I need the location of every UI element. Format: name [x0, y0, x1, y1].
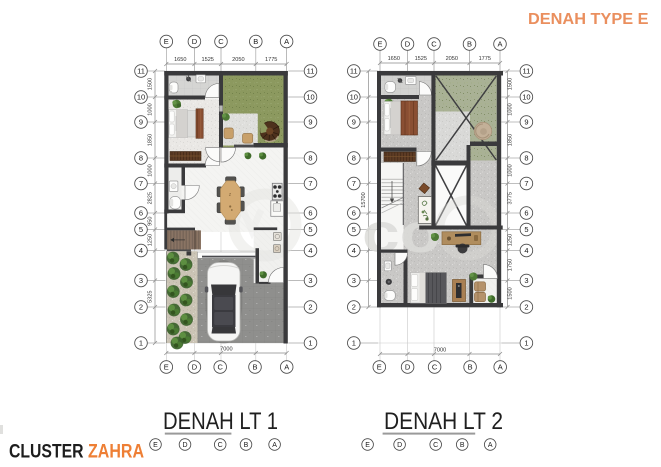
- svg-text:ZAHRA: ZAHRA: [88, 442, 144, 463]
- svg-text:1: 1: [352, 339, 356, 348]
- svg-text:E: E: [164, 363, 169, 372]
- svg-text:1650: 1650: [388, 56, 400, 62]
- svg-text:E: E: [377, 40, 382, 49]
- svg-text:1775: 1775: [265, 57, 277, 63]
- svg-text:B: B: [468, 363, 473, 372]
- svg-text:1650: 1650: [174, 57, 186, 63]
- svg-text:7: 7: [308, 179, 312, 188]
- svg-text:3775: 3775: [507, 192, 513, 204]
- svg-text:10: 10: [306, 93, 314, 102]
- svg-text:3: 3: [308, 276, 312, 285]
- svg-text:B: B: [460, 442, 465, 449]
- svg-text:DENAH LT 2: DENAH LT 2: [384, 408, 503, 435]
- svg-text:3: 3: [352, 276, 356, 285]
- svg-text:D: D: [192, 37, 198, 46]
- svg-text:5325: 5325: [148, 290, 154, 302]
- svg-text:2825: 2825: [148, 192, 154, 204]
- svg-text:1: 1: [139, 339, 143, 348]
- svg-text:1: 1: [308, 339, 312, 348]
- svg-text:CLUSTER: CLUSTER: [9, 442, 84, 463]
- svg-text:7: 7: [352, 179, 356, 188]
- svg-text:D: D: [192, 363, 198, 372]
- svg-text:7000: 7000: [220, 347, 232, 353]
- svg-text:B: B: [467, 40, 472, 49]
- svg-text:11: 11: [350, 67, 358, 76]
- svg-text:C: C: [432, 363, 438, 372]
- svg-text:C: C: [218, 37, 224, 46]
- svg-text:A: A: [284, 363, 289, 372]
- svg-text:5: 5: [524, 225, 528, 234]
- svg-text:1000: 1000: [148, 164, 154, 176]
- svg-text:8: 8: [139, 154, 143, 163]
- svg-text:4: 4: [352, 246, 356, 255]
- svg-text:1500: 1500: [148, 78, 154, 90]
- svg-text:1525: 1525: [201, 57, 213, 63]
- svg-text:7000: 7000: [434, 348, 446, 354]
- svg-text:1250: 1250: [507, 234, 513, 246]
- svg-text:2050: 2050: [232, 57, 244, 63]
- svg-text:1500: 1500: [507, 287, 513, 299]
- svg-text:9: 9: [352, 118, 356, 127]
- svg-text:2: 2: [524, 303, 528, 312]
- svg-text:1: 1: [524, 339, 528, 348]
- svg-text:DENAH LT 1: DENAH LT 1: [163, 408, 278, 435]
- svg-text:B: B: [244, 442, 249, 449]
- svg-text:1500: 1500: [507, 78, 513, 90]
- svg-text:10: 10: [350, 93, 358, 102]
- svg-text:11: 11: [523, 67, 531, 76]
- svg-text:A: A: [284, 37, 289, 46]
- svg-text:1775: 1775: [479, 56, 491, 62]
- svg-text:1850: 1850: [148, 134, 154, 146]
- svg-text:C: C: [431, 40, 437, 49]
- svg-text:1525: 1525: [415, 56, 427, 62]
- svg-text:1250: 1250: [148, 234, 154, 246]
- svg-text:A: A: [498, 363, 503, 372]
- svg-text:3: 3: [524, 276, 528, 285]
- svg-text:6: 6: [524, 209, 528, 218]
- svg-text:7: 7: [524, 179, 528, 188]
- svg-text:A: A: [272, 442, 277, 449]
- svg-text:9: 9: [524, 118, 528, 127]
- svg-text:4: 4: [139, 246, 143, 255]
- svg-text:5: 5: [308, 225, 312, 234]
- svg-text:E: E: [153, 442, 158, 449]
- svg-text:2: 2: [308, 303, 312, 312]
- svg-text:A: A: [488, 442, 493, 449]
- svg-text:6: 6: [139, 209, 143, 218]
- svg-text:B: B: [252, 363, 257, 372]
- svg-text:11: 11: [307, 67, 315, 76]
- svg-text:10: 10: [137, 93, 145, 102]
- svg-text:C: C: [218, 442, 223, 449]
- svg-text:1750: 1750: [507, 259, 513, 271]
- svg-text:11: 11: [137, 67, 145, 76]
- svg-text:9: 9: [308, 118, 312, 127]
- svg-text:D: D: [405, 363, 411, 372]
- svg-text:C: C: [217, 363, 223, 372]
- svg-text:DENAH TYPE E: DENAH TYPE E: [528, 11, 649, 28]
- svg-text:1000: 1000: [148, 103, 154, 115]
- svg-text:3: 3: [139, 276, 143, 285]
- svg-text:4: 4: [308, 246, 312, 255]
- svg-text:10: 10: [522, 93, 530, 102]
- svg-text:E: E: [377, 363, 382, 372]
- svg-text:950: 950: [148, 217, 154, 226]
- svg-text:2: 2: [352, 303, 356, 312]
- svg-text:2050: 2050: [446, 56, 458, 62]
- svg-text:8: 8: [524, 154, 528, 163]
- svg-text:E: E: [164, 37, 169, 46]
- svg-text:D: D: [182, 442, 187, 449]
- svg-text:1000: 1000: [507, 164, 513, 176]
- svg-text:2: 2: [139, 303, 143, 312]
- svg-text:7: 7: [139, 179, 143, 188]
- svg-text:B: B: [253, 37, 258, 46]
- svg-text:5: 5: [352, 225, 356, 234]
- svg-text:6: 6: [308, 209, 312, 218]
- svg-text:E: E: [365, 442, 370, 449]
- svg-text:1850: 1850: [507, 134, 513, 146]
- svg-text:8: 8: [352, 154, 356, 163]
- svg-text:8: 8: [308, 154, 312, 163]
- svg-text:1000: 1000: [507, 103, 513, 115]
- svg-text:5: 5: [139, 225, 143, 234]
- svg-text:9: 9: [139, 118, 143, 127]
- svg-text:4: 4: [524, 246, 528, 255]
- svg-text:6: 6: [352, 209, 356, 218]
- svg-text:D: D: [397, 442, 402, 449]
- svg-text:A: A: [497, 40, 502, 49]
- svg-text:C: C: [433, 442, 438, 449]
- svg-text:D: D: [405, 40, 411, 49]
